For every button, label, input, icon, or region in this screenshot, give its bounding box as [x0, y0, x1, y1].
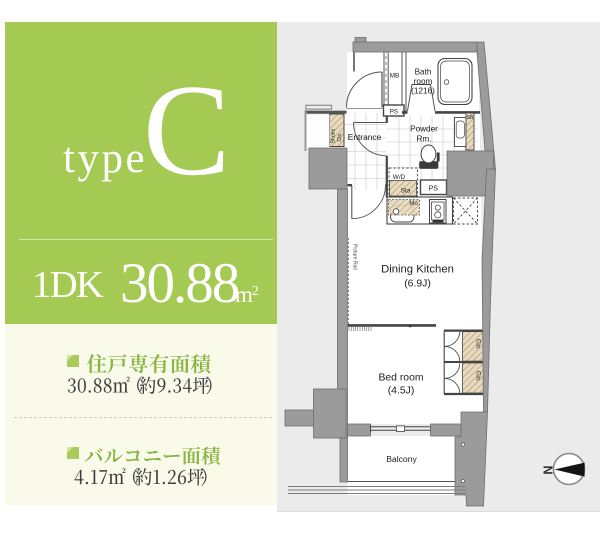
svg-text:Bed room: Bed room [378, 373, 423, 384]
svg-text:Dining Kitchen: Dining Kitchen [381, 264, 454, 276]
svg-text:Shoes: Shoes [331, 128, 337, 143]
svg-text:Rm.: Rm. [416, 135, 431, 144]
svg-text:Entrance: Entrance [348, 132, 382, 142]
svg-text:N: N [541, 465, 555, 474]
svg-text:Clo.: Clo. [475, 339, 481, 350]
svg-text:Sta: Sta [401, 187, 411, 194]
svg-text:Picture Rail: Picture Rail [352, 244, 358, 270]
svg-text:MB: MB [390, 73, 400, 80]
svg-text:PS: PS [429, 186, 439, 193]
svg-text:SB: SB [467, 115, 474, 121]
svg-text:Balcony: Balcony [386, 454, 417, 464]
svg-text:W/D: W/D [393, 174, 406, 181]
svg-text:PS: PS [390, 108, 398, 115]
svg-text:Clo.: Clo. [475, 371, 481, 382]
svg-text:(1216): (1216) [411, 87, 435, 96]
svg-text:Mo: Mo [409, 200, 418, 207]
svg-text:(6.9J): (6.9J) [404, 279, 431, 290]
svg-text:Powder: Powder [410, 125, 438, 134]
svg-text:room: room [414, 77, 433, 86]
svg-text:Clo.: Clo. [337, 132, 343, 141]
svg-text:Bath: Bath [415, 68, 432, 77]
svg-text:(4.5J): (4.5J) [388, 386, 415, 397]
